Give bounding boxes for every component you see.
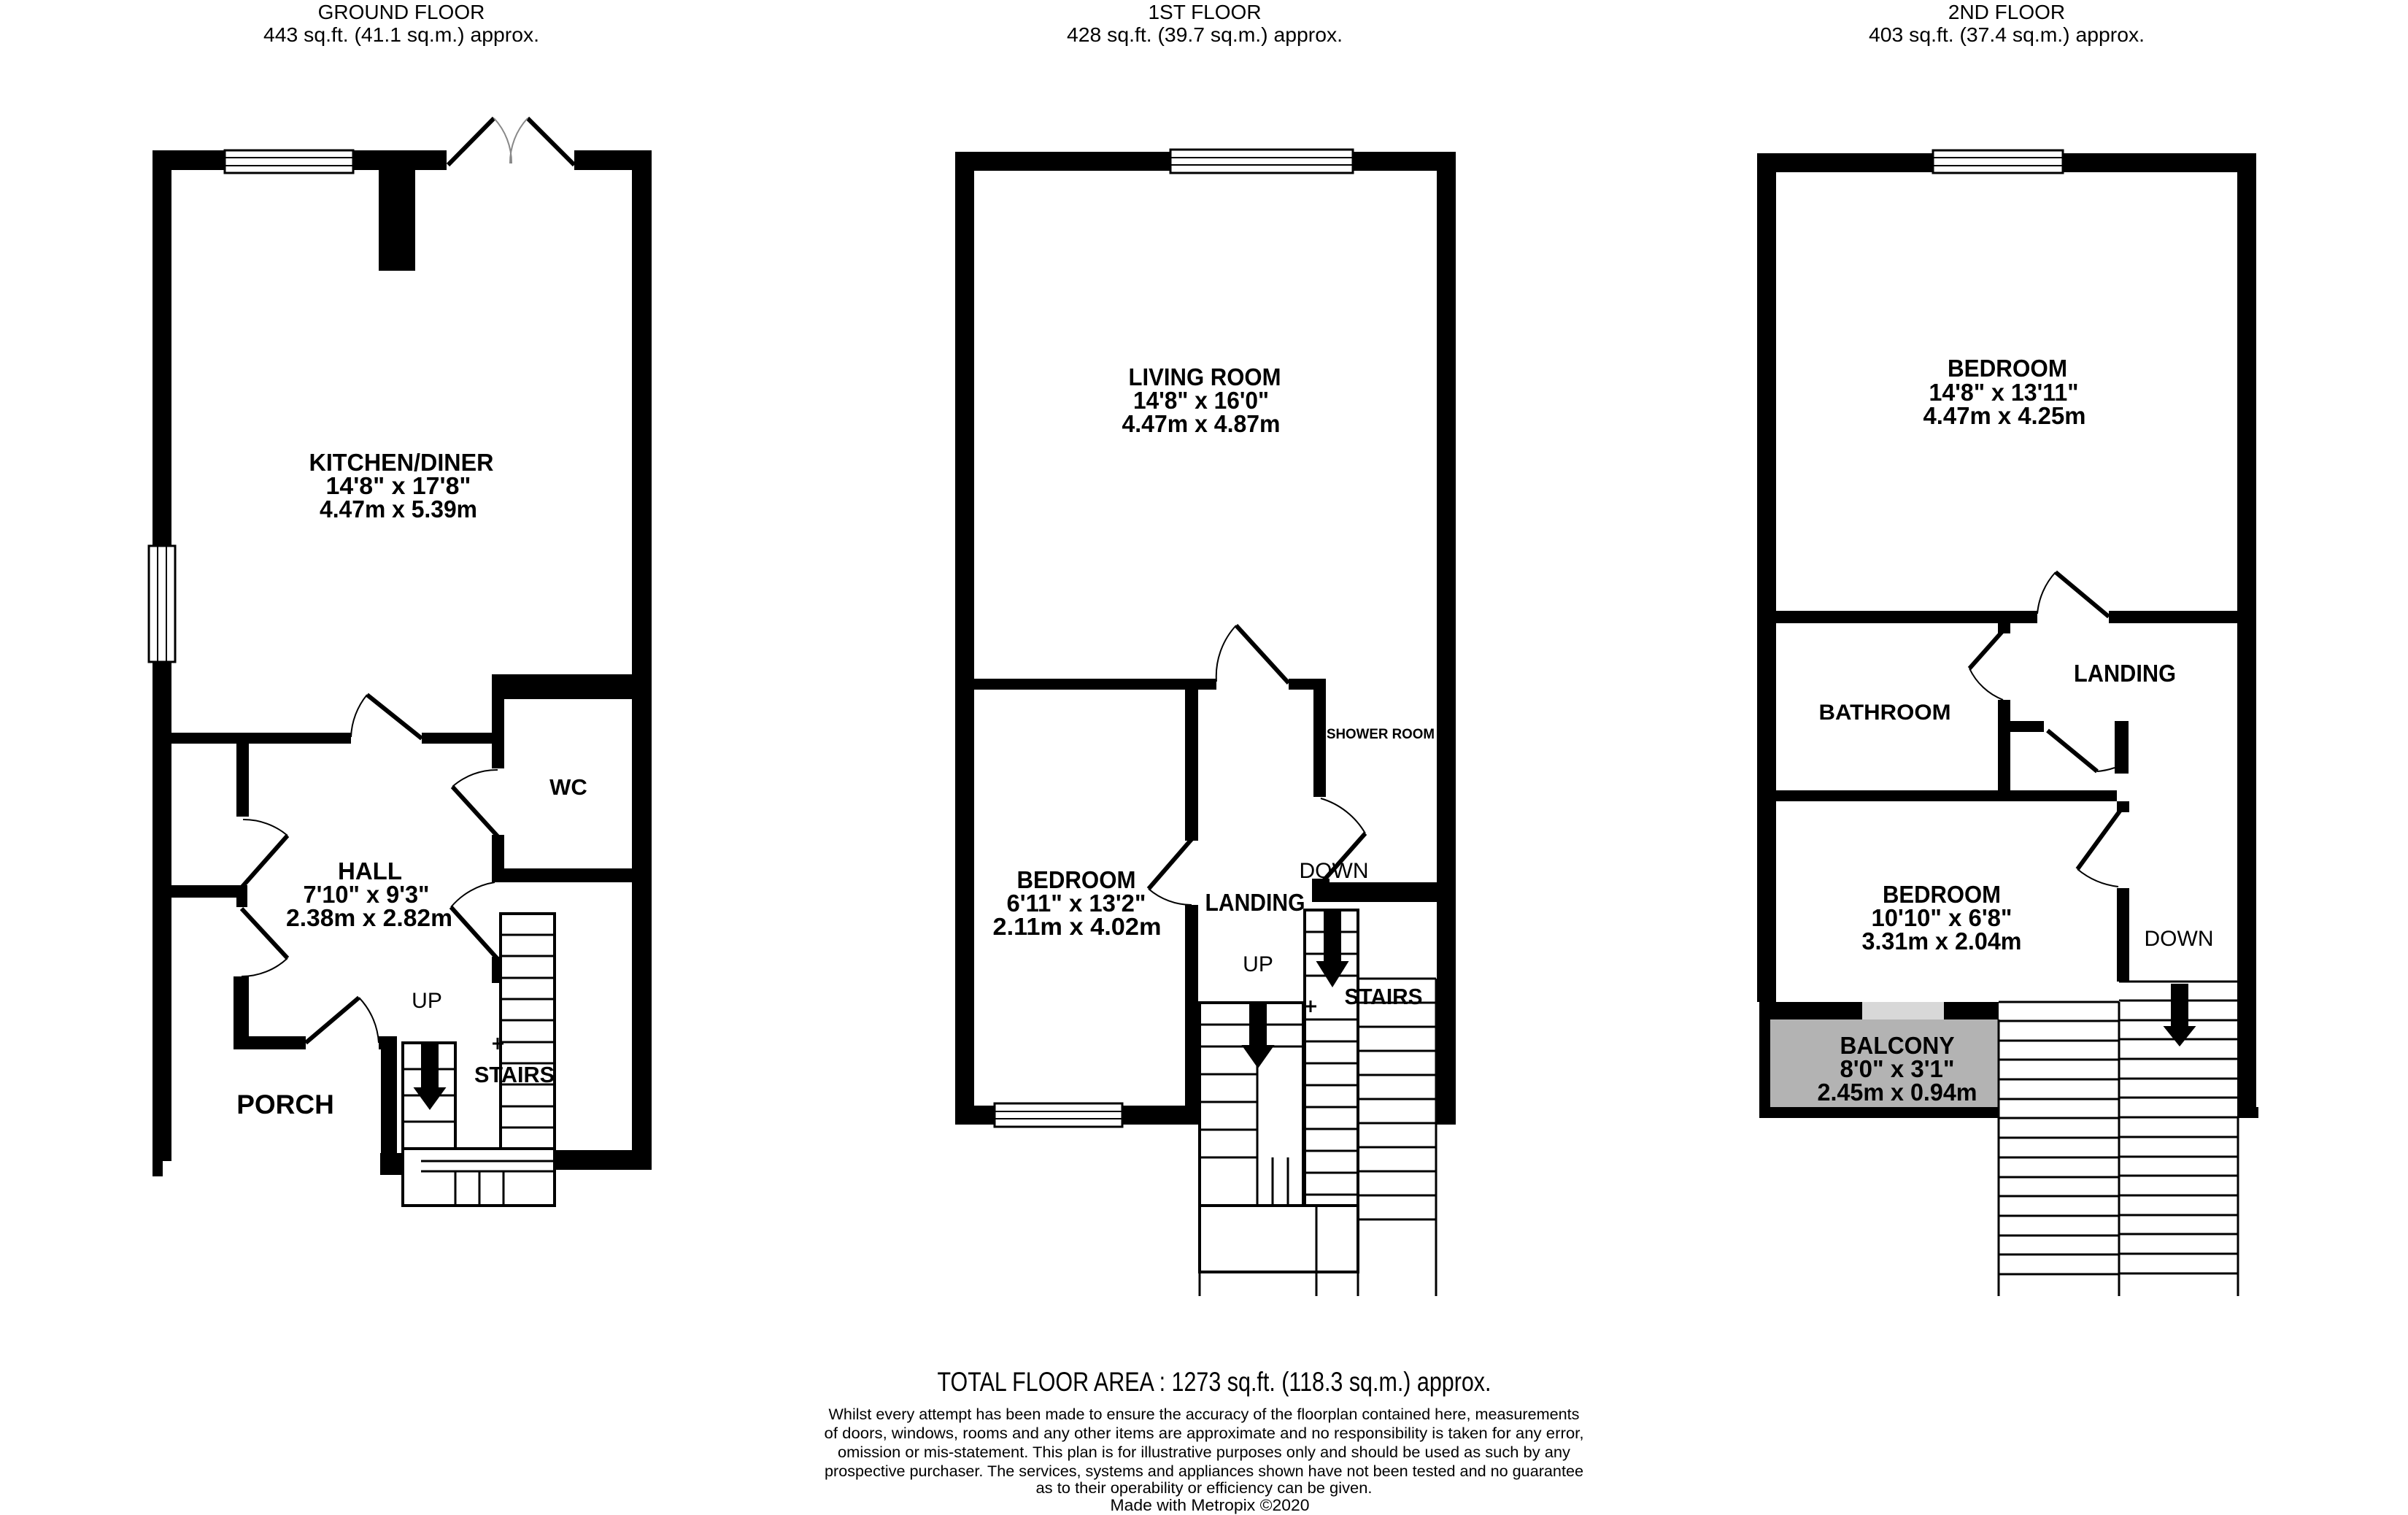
svg-text:2.45m x 0.94m: 2.45m x 0.94m: [1818, 1079, 1977, 1106]
svg-text:4.47m x 4.87m: 4.47m x 4.87m: [1122, 410, 1281, 437]
svg-text:UP: UP: [412, 989, 442, 1013]
svg-text:2.38m x 2.82m: 2.38m x 2.82m: [286, 904, 452, 931]
svg-text:BEDROOM: BEDROOM: [1948, 355, 2067, 382]
svg-text:428 sq.ft. (39.7 sq.m.) approx: 428 sq.ft. (39.7 sq.m.) approx.: [1067, 23, 1343, 46]
svg-text:SHOWER ROOM: SHOWER ROOM: [1327, 727, 1435, 742]
svg-text:4.47m x 4.25m: 4.47m x 4.25m: [1923, 402, 2086, 429]
svg-text:prospective purchaser. The ser: prospective purchaser. The services, sys…: [825, 1463, 1583, 1480]
svg-text:3.31m x 2.04m: 3.31m x 2.04m: [1862, 928, 2022, 955]
svg-text:STAIRS: STAIRS: [1345, 984, 1423, 1009]
svg-text:DOWN: DOWN: [1300, 859, 1369, 883]
svg-text:STAIRS: STAIRS: [474, 1062, 555, 1087]
svg-text:DOWN: DOWN: [2145, 927, 2214, 951]
svg-text:1ST FLOOR: 1ST FLOOR: [1148, 1, 1261, 23]
svg-text:403 sq.ft. (37.4 sq.m.) approx: 403 sq.ft. (37.4 sq.m.) approx.: [1869, 23, 2145, 46]
svg-text:omission or mis-statement. Thi: omission or mis-statement. This plan is …: [838, 1444, 1571, 1461]
svg-text:as to their operability or eff: as to their operability or efficiency ca…: [1036, 1480, 1373, 1497]
svg-text:TOTAL FLOOR AREA : 1273 sq.ft.: TOTAL FLOOR AREA : 1273 sq.ft. (118.3 sq…: [938, 1367, 1492, 1397]
svg-text:443 sq.ft. (41.1 sq.m.) approx: 443 sq.ft. (41.1 sq.m.) approx.: [263, 23, 539, 46]
svg-text:BATHROOM: BATHROOM: [1819, 701, 1951, 725]
svg-text:PORCH: PORCH: [236, 1090, 334, 1119]
svg-text:UP: UP: [1243, 952, 1273, 976]
svg-text:4.47m x 5.39m: 4.47m x 5.39m: [320, 496, 477, 523]
svg-text:WC: WC: [549, 774, 587, 800]
svg-text:2ND FLOOR: 2ND FLOOR: [1948, 1, 2065, 23]
svg-text:LANDING: LANDING: [2074, 660, 2176, 687]
svg-text:of doors, windows, rooms and a: of doors, windows, rooms and any other i…: [825, 1425, 1584, 1442]
svg-text:Whilst every attempt has been: Whilst every attempt has been made to en…: [829, 1406, 1580, 1423]
svg-text:2.11m x 4.02m: 2.11m x 4.02m: [993, 913, 1162, 940]
svg-text:LANDING: LANDING: [1205, 889, 1305, 916]
svg-text:Made with Metropix ©2020: Made with Metropix ©2020: [1111, 1496, 1310, 1514]
svg-text:GROUND FLOOR: GROUND FLOOR: [318, 1, 485, 23]
